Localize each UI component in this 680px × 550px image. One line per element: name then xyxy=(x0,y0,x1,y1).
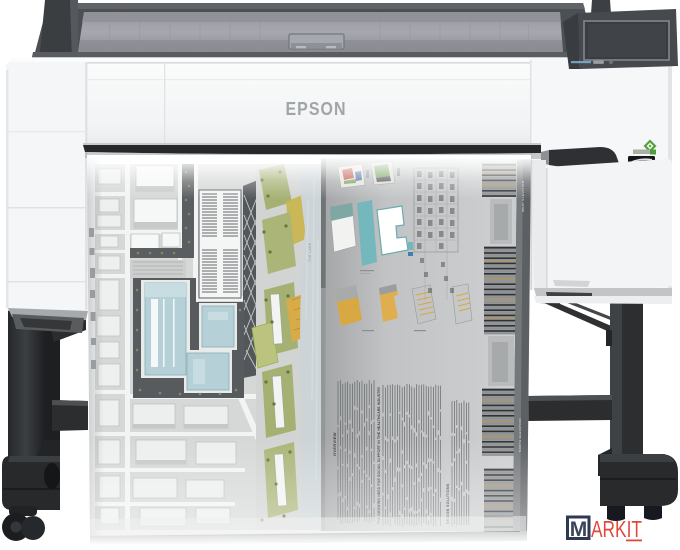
svg-text:EPSON: EPSON xyxy=(286,98,347,119)
svg-text:THE LAKE: THE LAKE xyxy=(308,243,312,262)
svg-text:M: M xyxy=(570,518,588,541)
svg-text:ARKIT: ARKIT xyxy=(591,516,642,542)
